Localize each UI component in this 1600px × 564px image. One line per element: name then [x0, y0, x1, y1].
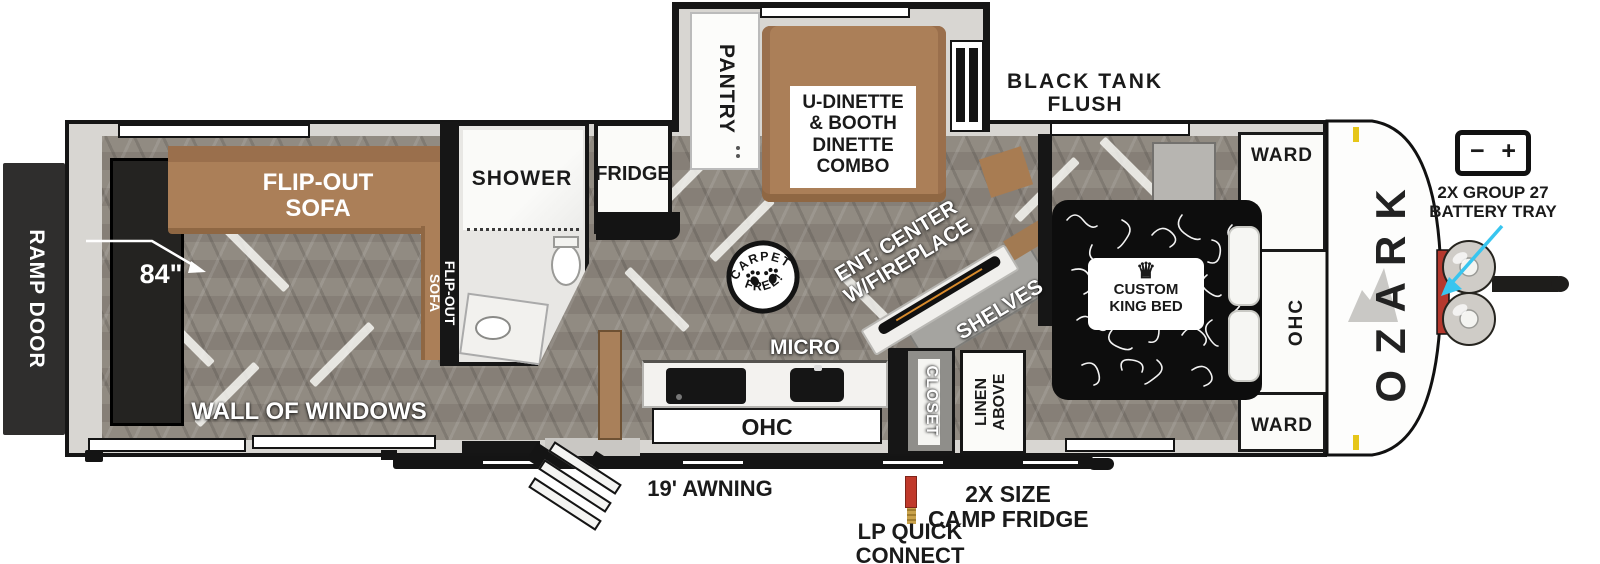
- faucet: [814, 365, 822, 371]
- bed-label-line2: KING BED: [1088, 299, 1204, 316]
- linen-line2: ABOVE: [991, 350, 1009, 454]
- camp-line2: CAMP FRIDGE: [928, 507, 1088, 532]
- dinette-line2: & BOOTH: [790, 113, 916, 134]
- black-tank-flush-label: BLACK TANK FLUSH: [980, 70, 1190, 122]
- u-dinette-table: U-DINETTE & BOOTH DINETTE COMBO: [790, 86, 916, 188]
- toilet-tank: [553, 236, 579, 248]
- sofa-side-line2: SOFA: [426, 226, 441, 360]
- awning-highlight: [883, 461, 943, 464]
- pantry-label: PANTRY: [712, 14, 738, 164]
- pantry-handle-dot: [736, 154, 740, 158]
- rear-bottom-window-2: [252, 435, 436, 449]
- propane-tank-1: [1443, 241, 1495, 293]
- underbody-fitting: [85, 450, 103, 462]
- kitchen-ohc-label: OHC: [741, 414, 792, 440]
- lp-line2: CONNECT: [845, 544, 975, 564]
- bedroom-dresser: [1152, 142, 1216, 202]
- battery-line2: BATTERY TRAY: [1423, 203, 1563, 222]
- awning-highlight: [1023, 461, 1078, 464]
- carpet-free-badge: CARPET FREE!: [723, 237, 803, 317]
- cooktop-knob: [676, 394, 682, 400]
- garage-top-window: [118, 124, 310, 138]
- crown-icon: ♛: [1088, 260, 1204, 282]
- bedroom-top-window: [1050, 122, 1190, 136]
- bed-pillow-2: [1228, 310, 1260, 382]
- bed-pillow-1: [1228, 226, 1260, 306]
- clearance-light-top: [1353, 127, 1359, 142]
- bed-label-line1: CUSTOM: [1088, 282, 1204, 299]
- sofa-top-line1: FLIP-OUT: [238, 170, 398, 196]
- bedroom-ohc-label: OHC: [1287, 252, 1311, 392]
- flip-out-sofa-top-label: FLIP-OUT SOFA: [238, 170, 398, 222]
- lp-quick-connect-icon: [905, 476, 917, 508]
- camp-line1: 2X SIZE: [928, 482, 1088, 507]
- fridge-front: [596, 212, 680, 240]
- bed-label: ♛ CUSTOM KING BED: [1088, 258, 1204, 330]
- tongue-jack: [1492, 276, 1566, 292]
- shower-rod: [467, 228, 579, 231]
- entry-door-panel: [598, 330, 622, 440]
- flip-out-sofa-side-label: FLIP-OUT SOFA: [421, 226, 457, 360]
- rear-bottom-window-1: [88, 438, 246, 452]
- clearance-light-bottom: [1353, 435, 1359, 450]
- battery-arrow-head: [1441, 277, 1462, 296]
- black-tank-line1: BLACK TANK: [980, 70, 1190, 93]
- battery-plus: +: [1501, 137, 1516, 166]
- dinette-line3: DINETTE: [790, 135, 916, 156]
- dinette-line4: COMBO: [790, 156, 916, 177]
- wall-of-windows-label: WALL OF WINDOWS: [178, 399, 440, 425]
- cooktop: [666, 368, 746, 404]
- dinette-top-window: [760, 6, 910, 18]
- awning-end-cap: [1088, 458, 1114, 470]
- brand-logo: OZARK: [1368, 148, 1416, 428]
- battery-arrow: [1449, 226, 1502, 286]
- pantry-handle-dot: [736, 146, 740, 150]
- linen-line1: LINEN: [973, 350, 991, 454]
- battery-line1: 2X GROUP 27: [1423, 184, 1563, 203]
- jack-handle: [1551, 276, 1569, 292]
- ward-bottom-label: WARD: [1244, 416, 1320, 440]
- micro-label: MICRO: [760, 336, 850, 360]
- bath-sink: [475, 316, 511, 340]
- awning-bracket-left: [381, 450, 397, 460]
- ramp-door-label: RAMP DOOR: [20, 163, 48, 435]
- closet-side-wall: [888, 348, 905, 454]
- bedroom-bottom-window: [1065, 438, 1175, 452]
- camp-fridge-label: 2X SIZE CAMP FRIDGE: [928, 482, 1088, 532]
- bottom-wall-window-strip: [462, 441, 540, 453]
- fridge-label: FRIDGE: [594, 163, 672, 187]
- kitchen-ohc: OHC: [652, 408, 882, 444]
- dinette-side-window: [950, 40, 984, 132]
- shower-label: SHOWER: [466, 167, 578, 191]
- propane-tank-2: [1443, 293, 1495, 345]
- awning-label: 19' AWNING: [636, 477, 784, 503]
- kitchen-counter: [642, 360, 888, 408]
- closet-label: CLOSET: [920, 348, 940, 454]
- window-pane: [956, 48, 965, 122]
- ward-top-label: WARD: [1244, 146, 1320, 170]
- battery-icon: − +: [1455, 130, 1531, 176]
- battery-tray: [1437, 250, 1449, 334]
- sofa-side-line1: FLIP-OUT: [442, 226, 457, 360]
- toilet: [551, 244, 581, 286]
- linen-above-label: LINEN ABOVE: [973, 350, 1013, 454]
- battery-tray-label: 2X GROUP 27 BATTERY TRAY: [1423, 184, 1563, 226]
- dinette-line1: U-DINETTE: [790, 92, 916, 113]
- awning-highlight: [683, 461, 743, 464]
- flip-out-sofa-top-backrest: [168, 146, 444, 162]
- battery-minus: −: [1470, 137, 1485, 166]
- kitchen-sink: [790, 368, 844, 402]
- floorplan-canvas: RAMP DOOR FLIP-OUT SOFA FLIP-OUT SOFA 84…: [0, 0, 1600, 564]
- window-pane: [969, 48, 978, 122]
- black-tank-line2: FLUSH: [980, 93, 1190, 116]
- sofa-top-line2: SOFA: [238, 196, 398, 222]
- garage-width-dimension: 84": [126, 260, 196, 290]
- awning-bar: [393, 456, 1093, 469]
